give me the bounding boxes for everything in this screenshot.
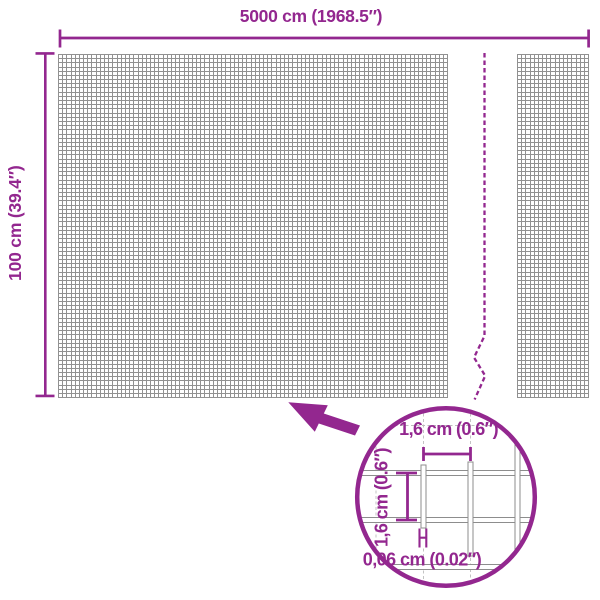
svg-text:100 cm (39.4″): 100 cm (39.4″) [5,165,25,281]
svg-text:5000 cm (1968.5″): 5000 cm (1968.5″) [240,6,382,26]
svg-text:1,6 cm (0.6″): 1,6 cm (0.6″) [399,419,498,439]
svg-text:1,6 cm (0.6″): 1,6 cm (0.6″) [372,447,392,546]
svg-text:0,06 cm (0.02″): 0,06 cm (0.02″) [363,550,482,570]
